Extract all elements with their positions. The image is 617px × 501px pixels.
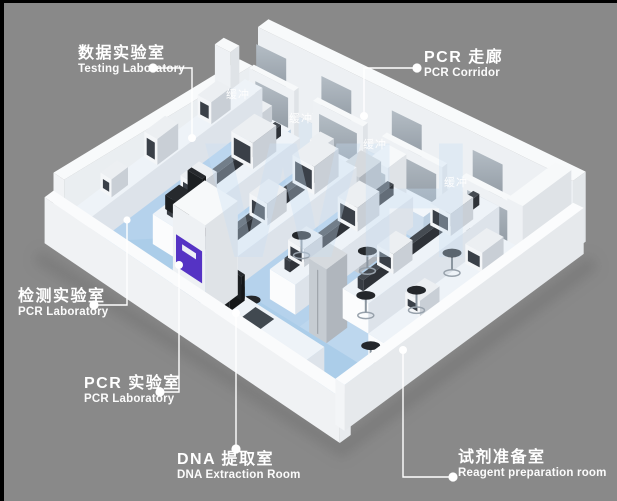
buffer-room-label: 缓冲 <box>226 86 250 102</box>
frame-left <box>0 0 4 501</box>
callout-detection-zh: 检测实验室 <box>18 287 108 306</box>
gray-cabinet <box>309 243 347 343</box>
callout-pcr: PCR 实验室 PCR Laboratory <box>84 374 181 407</box>
lab-floorplan-infographic: WH 缓冲 缓冲 缓冲 缓冲 数据实验室 <box>0 0 617 501</box>
callout-testing: 数据实验室 Testing Laboratory <box>78 44 185 77</box>
callout-pcr-zh: PCR 实验室 <box>84 374 181 393</box>
callout-dna-en: DNA Extraction Room <box>177 469 301 483</box>
callout-corridor-en: PCR Corridor <box>424 67 503 81</box>
callout-corridor: PCR 走廊 PCR Corridor <box>424 48 503 81</box>
callout-detection-en: PCR Laboratory <box>18 306 108 320</box>
callout-corridor-zh: PCR 走廊 <box>424 48 503 67</box>
callout-testing-en: Testing Laboratory <box>78 63 185 77</box>
callout-reagent-zh: 试剂准备室 <box>458 448 607 467</box>
callout-dna: DNA 提取室 DNA Extraction Room <box>177 450 301 483</box>
callout-dna-zh: DNA 提取室 <box>177 450 301 469</box>
buffer-room-label: 缓冲 <box>444 174 468 190</box>
callout-reagent: 试剂准备室 Reagent preparation room <box>458 448 607 481</box>
buffer-room-label: 缓冲 <box>289 110 313 126</box>
callout-pcr-en: PCR Laboratory <box>84 393 181 407</box>
frame-top <box>0 0 617 3</box>
callout-detection: 检测实验室 PCR Laboratory <box>18 287 108 320</box>
callout-testing-zh: 数据实验室 <box>78 44 185 63</box>
buffer-room-label: 缓冲 <box>363 136 387 152</box>
callout-reagent-en: Reagent preparation room <box>458 467 607 481</box>
